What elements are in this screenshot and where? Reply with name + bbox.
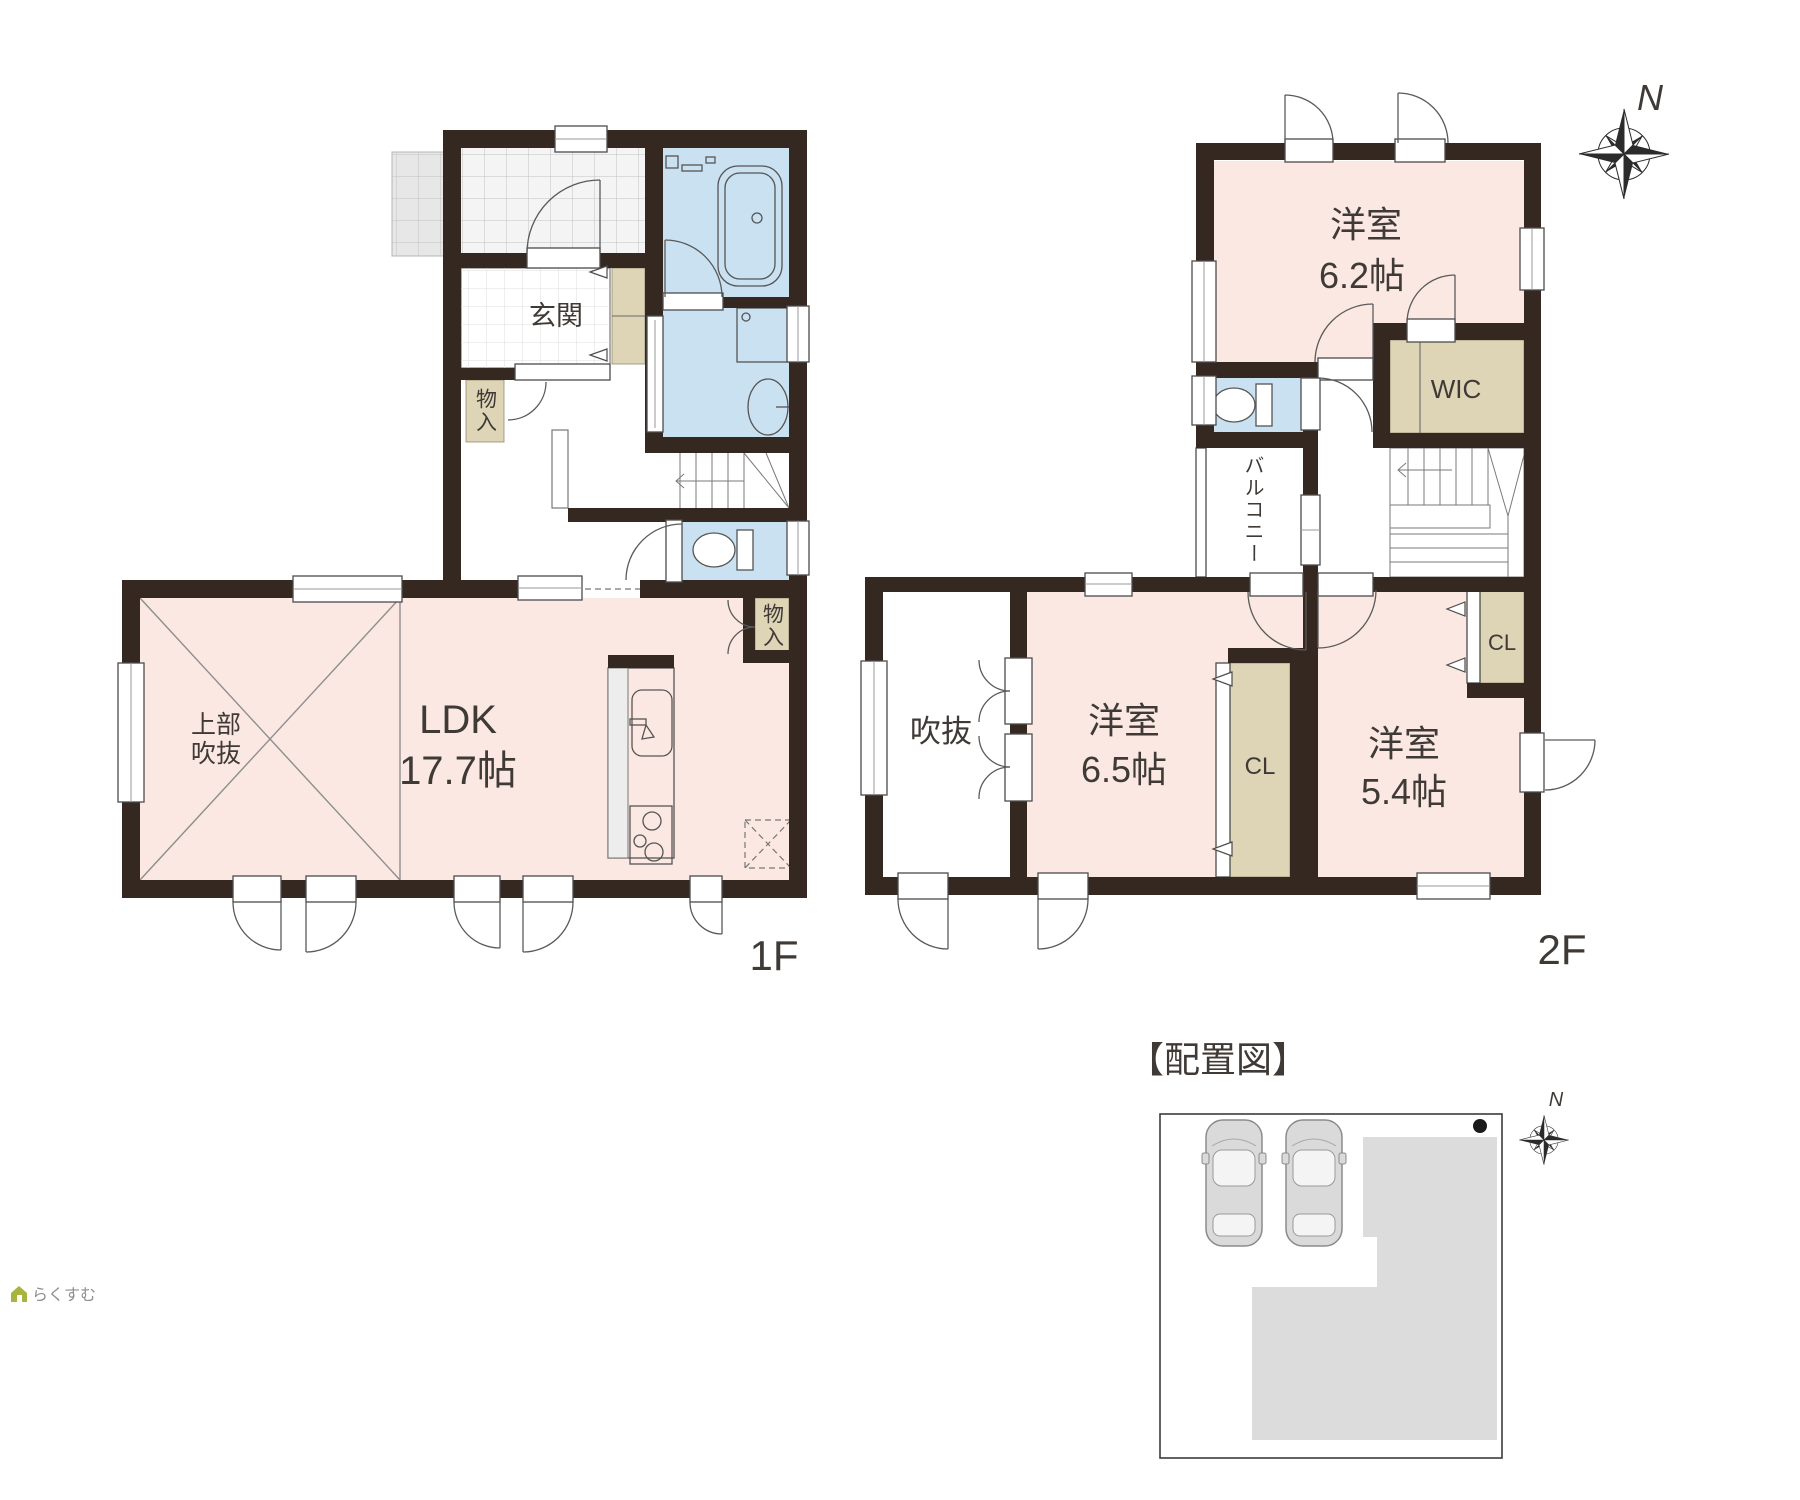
- house-logo-icon: [11, 1286, 27, 1302]
- label-void-2f: 吹抜: [910, 714, 972, 749]
- label-room62-size: 6.2帖: [1319, 255, 1405, 296]
- label-balcony: バルコニー: [1241, 455, 1263, 565]
- label-ldk-size: 17.7帖: [399, 749, 517, 793]
- label-room65-size: 6.5帖: [1081, 749, 1167, 790]
- north-arrow-main: N: [1579, 77, 1669, 199]
- label-genkan: 玄関: [529, 301, 583, 331]
- compass-rose-icon-small: [1519, 1115, 1569, 1165]
- compass-rose-icon: [1579, 109, 1669, 199]
- label-floor-1f: 1F: [749, 932, 798, 979]
- label-room54-size: 5.4帖: [1361, 771, 1447, 812]
- stair-rail: [552, 430, 568, 508]
- floor-plan-image: 玄関 物入 物入 LDK 17.7帖 上部 吹抜 1F: [0, 0, 1800, 1500]
- label-room65: 洋室: [1088, 700, 1160, 741]
- logo: らくすむ: [11, 1286, 96, 1304]
- site-plan-title: 【配置図】: [1128, 1039, 1308, 1080]
- label-void-line2: 吹抜: [191, 740, 241, 768]
- floor1-plan: 玄関 物入 物入 LDK 17.7帖 上部 吹抜 1F: [118, 126, 809, 979]
- label-closet54: CL: [1488, 630, 1516, 655]
- site-plan: 【配置図】 N: [1128, 1039, 1569, 1458]
- site-corner-marker: [1473, 1119, 1487, 1133]
- north-label-site: N: [1549, 1089, 1564, 1111]
- north-label: N: [1637, 77, 1664, 118]
- balcony-railing: [1196, 448, 1206, 577]
- label-wic: WIC: [1431, 374, 1482, 404]
- label-storage-ldk: 物入: [761, 603, 785, 649]
- floor-plan-page: 玄関 物入 物入 LDK 17.7帖 上部 吹抜 1F: [0, 0, 1800, 1500]
- label-room62: 洋室: [1330, 204, 1402, 245]
- label-closet65: CL: [1245, 753, 1276, 780]
- toilet-icon-1f: [693, 530, 753, 570]
- label-room54: 洋室: [1368, 723, 1440, 764]
- room-washroom: [663, 308, 789, 437]
- stairs-2f: [1390, 448, 1524, 577]
- car-icon: [1202, 1120, 1266, 1246]
- label-void-line1: 上部: [191, 711, 241, 739]
- floor2-plan: 洋室 6.2帖 WIC バルコニー 吹抜 洋室 6.5帖 CL 洋室 5.4帖 …: [861, 93, 1595, 973]
- label-storage-entry: 物入: [474, 388, 498, 434]
- label-ldk: LDK: [419, 698, 497, 742]
- car-icon: [1282, 1120, 1346, 1246]
- logo-text: らくすむ: [32, 1286, 96, 1304]
- north-arrow-site: N: [1519, 1089, 1569, 1165]
- stairs-1f: [676, 453, 789, 508]
- closet-54-door: [1467, 590, 1480, 683]
- label-floor-2f: 2F: [1537, 926, 1586, 973]
